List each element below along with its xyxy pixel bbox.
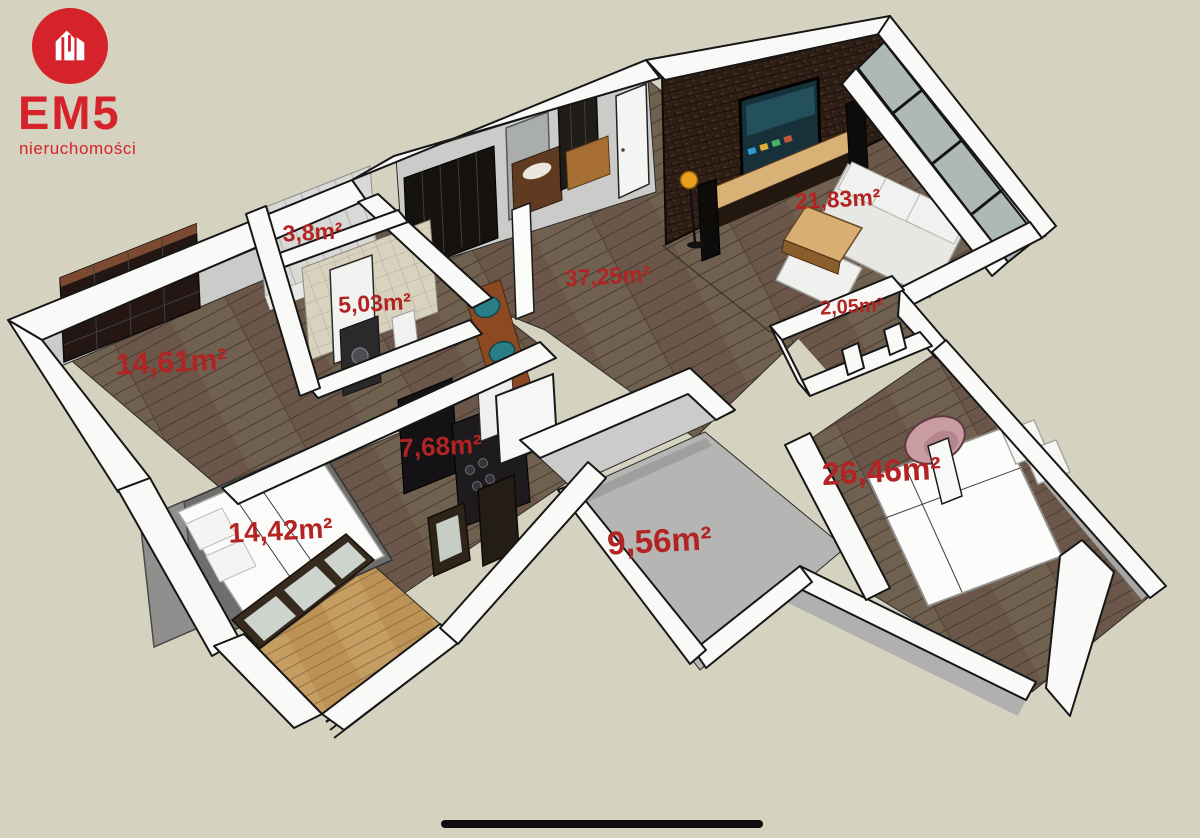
screenshot-stage: EM5 nieruchomości — [0, 0, 1200, 838]
entrance-door — [616, 84, 649, 198]
hall-column — [512, 203, 534, 319]
area-label-master-bedroom: 26,46m² — [821, 450, 942, 492]
speaker — [698, 179, 720, 261]
home-indicator-bar — [441, 820, 763, 828]
area-label-corridor: 2,05m² — [819, 294, 884, 319]
area-label-utility: 9,56m² — [606, 519, 712, 561]
area-label-kitchen: 7,68m² — [399, 429, 483, 463]
area-label-hall: 37,25m² — [564, 261, 651, 291]
area-label-bathroom: 5,03m² — [338, 288, 412, 318]
area-label-bedroom: 14,42m² — [228, 512, 334, 548]
floor-plan: 3,8m² 5,03m² 37,25m² 21,83m² 2,05m² 14,6… — [0, 0, 1200, 838]
area-label-wardrobe: 3,8m² — [282, 217, 344, 246]
area-label-living: 21,83m² — [794, 184, 881, 214]
area-label-room-1461: 14,61m² — [115, 343, 228, 382]
